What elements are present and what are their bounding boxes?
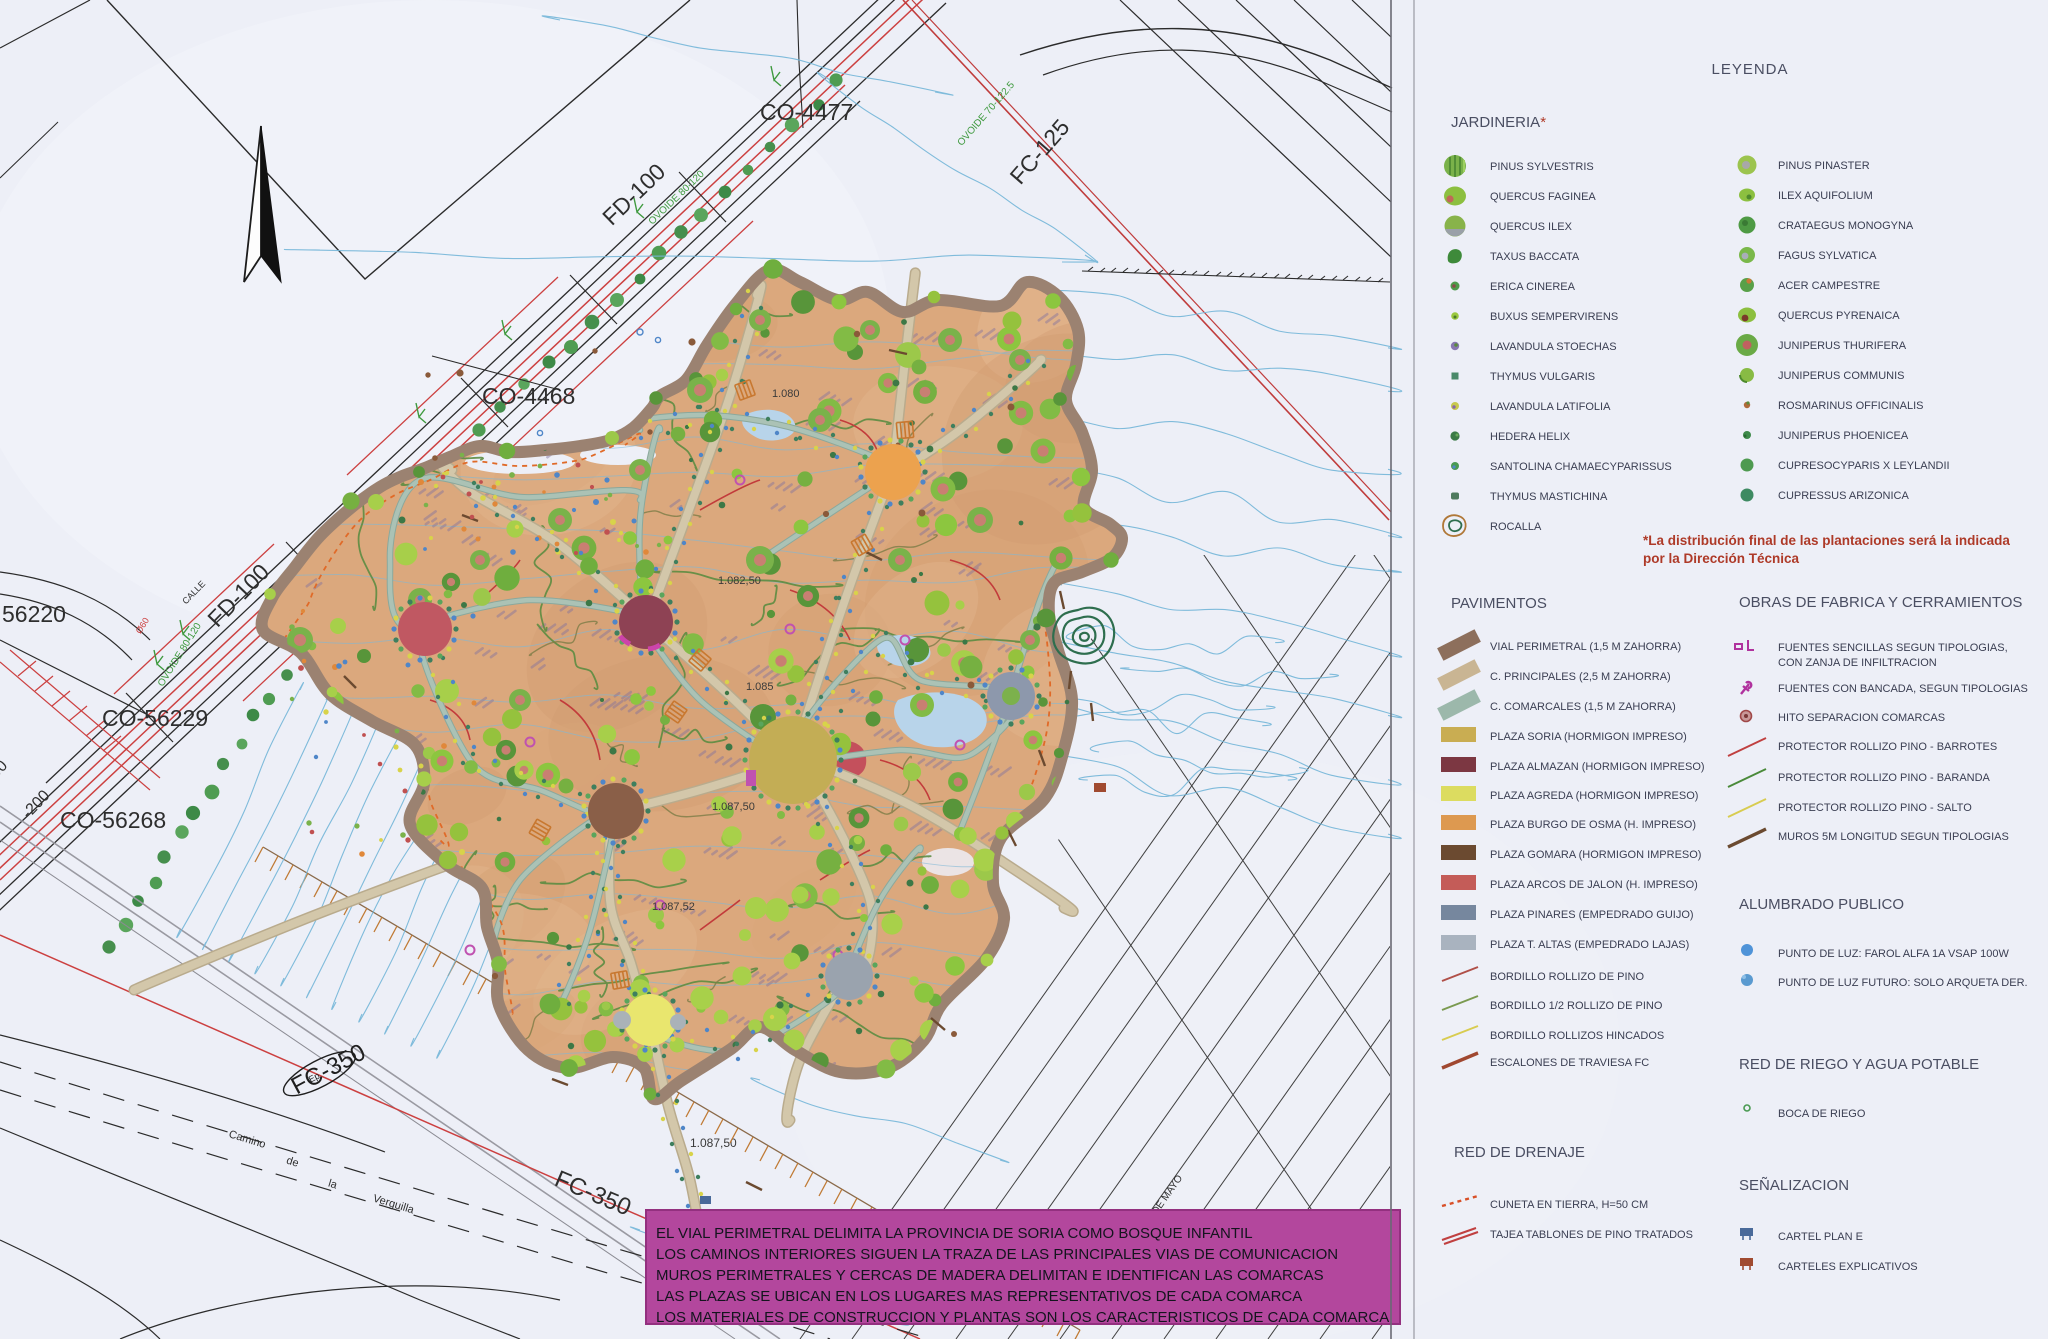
svg-text:BORDILLO ROLLIZO DE PINO: BORDILLO ROLLIZO DE PINO (1490, 971, 1644, 983)
svg-text:1.087,50: 1.087,50 (690, 1136, 737, 1150)
svg-text:LOS MATERIALES DE CONSTRUCCION: LOS MATERIALES DE CONSTRUCCION Y PLANTAS… (656, 1309, 1389, 1326)
svg-text:CRATAEGUS MONOGYNA: CRATAEGUS MONOGYNA (1778, 220, 1914, 232)
svg-text:TAJEA TABLONES DE PINO TRATADO: TAJEA TABLONES DE PINO TRATADOS (1490, 1229, 1693, 1241)
svg-text:JUNIPERUS PHOENICEA: JUNIPERUS PHOENICEA (1778, 430, 1909, 442)
svg-text:FUENTES CON BANCADA, SEGUN TIP: FUENTES CON BANCADA, SEGUN TIPOLOGIAS (1778, 683, 2028, 695)
svg-text:PINUS PINASTER: PINUS PINASTER (1778, 160, 1870, 172)
svg-text:LOS CAMINOS INTERIORES SIGUEN: LOS CAMINOS INTERIORES SIGUEN LA TRAZA D… (656, 1246, 1338, 1263)
svg-text:CARTELES EXPLICATIVOS: CARTELES EXPLICATIVOS (1778, 1261, 1918, 1273)
svg-text:ALUMBRADO PUBLICO: ALUMBRADO PUBLICO (1739, 896, 1904, 913)
svg-text:CO-56229: CO-56229 (102, 705, 208, 731)
svg-text:PUNTO DE LUZ FUTURO: SOLO ARQU: PUNTO DE LUZ FUTURO: SOLO ARQUETA DER. (1778, 977, 2028, 989)
svg-text:BORDILLO 1/2 ROLLIZO DE PINO: BORDILLO 1/2 ROLLIZO DE PINO (1490, 1000, 1663, 1012)
svg-text:CO-4468: CO-4468 (482, 383, 575, 409)
svg-text:LEYENDA: LEYENDA (1711, 61, 1788, 78)
svg-text:1.080: 1.080 (772, 388, 800, 400)
svg-text:PLAZA PINARES (EMPEDRADO GUIJO: PLAZA PINARES (EMPEDRADO GUIJO) (1490, 909, 1694, 921)
svg-text:ERICA CINEREA: ERICA CINEREA (1490, 281, 1576, 293)
svg-text:PLAZA ARCOS DE JALON (H. IMPRE: PLAZA ARCOS DE JALON (H. IMPRESO) (1490, 879, 1698, 891)
svg-text:VIAL PERIMETRAL (1,5 M ZAHORRA: VIAL PERIMETRAL (1,5 M ZAHORRA) (1490, 641, 1681, 653)
svg-text:LAVANDULA STOECHAS: LAVANDULA STOECHAS (1490, 341, 1617, 353)
svg-text:TAXUS BACCATA: TAXUS BACCATA (1490, 251, 1580, 263)
svg-text:JARDINERIA*: JARDINERIA* (1451, 114, 1546, 131)
svg-text:QUERCUS ILEX: QUERCUS ILEX (1490, 221, 1573, 233)
svg-text:QUERCUS PYRENAICA: QUERCUS PYRENAICA (1778, 310, 1900, 322)
svg-text:CUPRESSUS ARIZONICA: CUPRESSUS ARIZONICA (1778, 490, 1909, 502)
svg-text:ROCALLA: ROCALLA (1490, 521, 1542, 533)
svg-text:PLAZA AGREDA (HORMIGON IMPRESO: PLAZA AGREDA (HORMIGON IMPRESO) (1490, 790, 1698, 802)
svg-text:MUROS PERIMETRALES Y CERCAS DE: MUROS PERIMETRALES Y CERCAS DE MADERA DE… (656, 1267, 1324, 1284)
svg-text:MUROS 5M LONGITUD SEGUN TIPOLO: MUROS 5M LONGITUD SEGUN TIPOLOGIAS (1778, 831, 2009, 843)
svg-text:1.087,50: 1.087,50 (712, 801, 755, 813)
svg-text:BORDILLO ROLLIZOS HINCADOS: BORDILLO ROLLIZOS HINCADOS (1490, 1030, 1664, 1042)
svg-text:PLAZA SORIA (HORMIGON IMPRESO): PLAZA SORIA (HORMIGON IMPRESO) (1490, 731, 1687, 743)
svg-text:CUNETA EN TIERRA, H=50 CM: CUNETA EN TIERRA, H=50 CM (1490, 1199, 1648, 1211)
svg-text:1.087,52: 1.087,52 (652, 901, 695, 913)
svg-text:PLAZA T. ALTAS (EMPEDRADO LAJA: PLAZA T. ALTAS (EMPEDRADO LAJAS) (1490, 939, 1689, 951)
svg-text:*La distribución final de las: *La distribución final de las plantacion… (1643, 533, 2010, 548)
svg-text:CARTEL PLAN E: CARTEL PLAN E (1778, 1231, 1863, 1243)
svg-text:JUNIPERUS THURIFERA: JUNIPERUS THURIFERA (1778, 340, 1907, 352)
svg-text:PINUS SYLVESTRIS: PINUS SYLVESTRIS (1490, 161, 1594, 173)
svg-text:PLAZA GOMARA (HORMIGON IMPRESO: PLAZA GOMARA (HORMIGON IMPRESO) (1490, 849, 1701, 861)
svg-text:ACER CAMPESTRE: ACER CAMPESTRE (1778, 280, 1880, 292)
svg-text:1.082,50: 1.082,50 (718, 575, 761, 587)
svg-text:ILEX AQUIFOLIUM: ILEX AQUIFOLIUM (1778, 190, 1873, 202)
svg-text:SEÑALIZACION: SEÑALIZACION (1739, 1177, 1849, 1194)
svg-text:1.085: 1.085 (746, 681, 774, 693)
svg-text:THYMUS MASTICHINA: THYMUS MASTICHINA (1490, 491, 1608, 503)
svg-text:PROTECTOR ROLLIZO PINO - SALTO: PROTECTOR ROLLIZO PINO - SALTO (1778, 802, 1972, 814)
svg-text:PAVIMENTOS: PAVIMENTOS (1451, 595, 1547, 612)
svg-text:EL VIAL PERIMETRAL DELIMITA LA: EL VIAL PERIMETRAL DELIMITA LA PROVINCIA… (656, 1225, 1253, 1242)
svg-text:CUPRESOCYPARIS X LEYLANDII: CUPRESOCYPARIS X LEYLANDII (1778, 460, 1950, 472)
svg-text:CON ZANJA DE INFILTRACION: CON ZANJA DE INFILTRACION (1778, 657, 1937, 669)
svg-text:HITO SEPARACION COMARCAS: HITO SEPARACION COMARCAS (1778, 712, 1945, 724)
svg-text:C. COMARCALES (1,5 M ZAHORRA): C. COMARCALES (1,5 M ZAHORRA) (1490, 701, 1676, 713)
svg-text:C. PRINCIPALES (2,5 M ZAHORRA): C. PRINCIPALES (2,5 M ZAHORRA) (1490, 671, 1671, 683)
svg-text:PROTECTOR ROLLIZO PINO - BARRO: PROTECTOR ROLLIZO PINO - BARROTES (1778, 741, 1997, 753)
svg-text:PROTECTOR ROLLIZO PINO - BARAN: PROTECTOR ROLLIZO PINO - BARANDA (1778, 772, 1991, 784)
svg-text:JUNIPERUS COMMUNIS: JUNIPERUS COMMUNIS (1778, 370, 1905, 382)
svg-text:QUERCUS FAGINEA: QUERCUS FAGINEA (1490, 191, 1596, 203)
svg-text:PLAZA ALMAZAN (HORMIGON IMPRES: PLAZA ALMAZAN (HORMIGON IMPRESO) (1490, 761, 1705, 773)
svg-text:PUNTO DE LUZ: FAROL ALFA 1A VS: PUNTO DE LUZ: FAROL ALFA 1A VSAP 100W (1778, 948, 2010, 960)
svg-text:RED DE RIEGO Y AGUA POTABLE: RED DE RIEGO Y AGUA POTABLE (1739, 1056, 1979, 1073)
svg-text:RED DE DRENAJE: RED DE DRENAJE (1454, 1144, 1585, 1161)
svg-text:FUENTES SENCILLAS SEGUN TIPOLO: FUENTES SENCILLAS SEGUN TIPOLOGIAS, (1778, 642, 2008, 654)
svg-text:CO-4477: CO-4477 (760, 99, 853, 125)
svg-text:por la Dirección Técnica: por la Dirección Técnica (1643, 551, 1800, 566)
svg-text:56220: 56220 (2, 601, 66, 627)
svg-text:THYMUS VULGARIS: THYMUS VULGARIS (1490, 371, 1595, 383)
svg-text:PLAZA BURGO DE OSMA (H. IMPRES: PLAZA BURGO DE OSMA (H. IMPRESO) (1490, 819, 1696, 831)
svg-text:BOCA DE RIEGO: BOCA DE RIEGO (1778, 1108, 1866, 1120)
svg-text:LAVANDULA LATIFOLIA: LAVANDULA LATIFOLIA (1490, 401, 1611, 413)
svg-text:HEDERA HELIX: HEDERA HELIX (1490, 431, 1571, 443)
svg-text:ROSMARINUS OFFICINALIS: ROSMARINUS OFFICINALIS (1778, 400, 1923, 412)
svg-text:SANTOLINA CHAMAECYPARISSUS: SANTOLINA CHAMAECYPARISSUS (1490, 461, 1672, 473)
svg-text:BUXUS SEMPERVIRENS: BUXUS SEMPERVIRENS (1490, 311, 1618, 323)
svg-text:OBRAS DE FABRICA Y CERRAMIENTO: OBRAS DE FABRICA Y CERRAMIENTOS (1739, 594, 2022, 611)
svg-text:ESCALONES DE TRAVIESA FC: ESCALONES DE TRAVIESA FC (1490, 1057, 1649, 1069)
svg-text:FAGUS SYLVATICA: FAGUS SYLVATICA (1778, 250, 1877, 262)
svg-text:LAS PLAZAS SE UBICAN EN LOS LU: LAS PLAZAS SE UBICAN EN LOS LUGARES MAS … (656, 1288, 1302, 1305)
svg-text:CO-56268: CO-56268 (60, 807, 166, 833)
